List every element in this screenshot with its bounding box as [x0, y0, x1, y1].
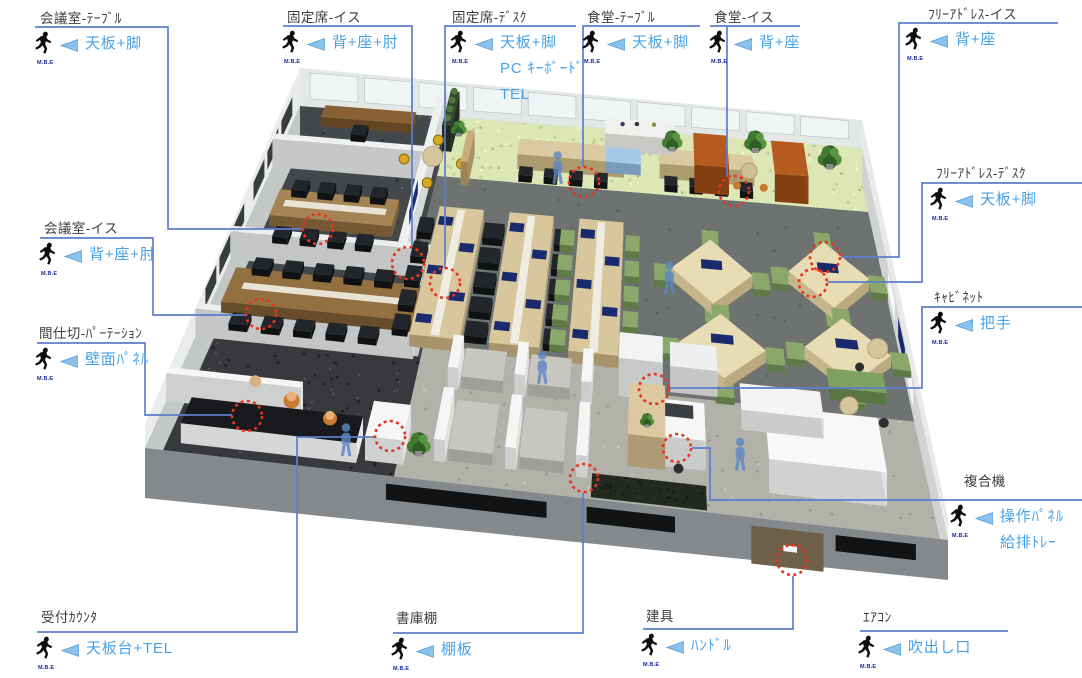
- blue-chevron-icon: [306, 37, 325, 52]
- component-list: 背+座+肘: [89, 242, 156, 268]
- component-label: TEL: [500, 82, 584, 108]
- callout-title-cafeteria-chair: 食堂-イス: [714, 6, 774, 26]
- callout-body-meeting-room-table: M.B.E天板+脚: [33, 31, 142, 66]
- callout-title-fixed-seat-chair: 固定席-イス: [287, 6, 361, 26]
- component-label: 背+座+肘: [89, 242, 156, 268]
- component-label: 把手: [980, 311, 1012, 337]
- mbe-figure-glyph: [38, 242, 59, 267]
- mbe-figure-glyph: [708, 30, 729, 55]
- mbe-icon: M.B.E: [928, 187, 954, 222]
- mbe-figure-glyph: [929, 311, 950, 336]
- component-label: 天板+脚: [500, 30, 584, 56]
- component-label: ﾊﾝﾄﾞﾙ: [691, 633, 732, 659]
- blue-chevron-icon: [882, 642, 901, 657]
- mbe-icon: M.B.E: [903, 27, 929, 62]
- callout-title-book-shelf: 書庫棚: [396, 607, 438, 627]
- mbe-icon: M.B.E: [948, 504, 974, 539]
- mbe-label: M.B.E: [860, 664, 876, 670]
- callout-title-meeting-room-chair: 会議室-イス: [44, 217, 118, 237]
- component-list: 操作ﾊﾟﾈﾙ給排ﾄﾚｰ: [1000, 504, 1064, 556]
- mbe-icon: M.B.E: [33, 347, 59, 382]
- callout-body-cafeteria-chair: M.B.E背+座: [707, 30, 800, 65]
- callout-title-meeting-room-table: 会議室-ﾃｰﾌﾞﾙ: [40, 7, 122, 27]
- mbe-figure-glyph: [929, 187, 950, 212]
- component-list: 棚板: [441, 637, 473, 663]
- component-label: 天板+脚: [980, 187, 1037, 213]
- mbe-figure-glyph: [390, 637, 411, 662]
- component-label: 背+座+肘: [332, 30, 399, 56]
- component-list: 背+座: [955, 27, 996, 53]
- component-label: PC ｷｰﾎﾞｰﾄﾞ: [500, 56, 584, 82]
- component-list: 背+座: [759, 30, 800, 56]
- mbe-icon: M.B.E: [856, 635, 882, 670]
- mbe-label: M.B.E: [37, 60, 53, 66]
- mbe-icon: M.B.E: [639, 633, 665, 668]
- callout-title-cafeteria-table: 食堂-ﾃｰﾌﾞﾙ: [587, 6, 655, 26]
- blue-chevron-icon: [929, 34, 948, 49]
- blue-chevron-icon: [954, 194, 973, 209]
- mbe-icon: M.B.E: [37, 242, 63, 277]
- component-label: 棚板: [441, 637, 473, 663]
- blue-chevron-icon: [665, 640, 684, 655]
- callout-body-multifunction-printer: M.B.E操作ﾊﾟﾈﾙ給排ﾄﾚｰ: [948, 504, 1064, 556]
- mbe-figure-glyph: [640, 633, 661, 658]
- mbe-label: M.B.E: [41, 271, 57, 277]
- mbe-figure-glyph: [281, 30, 302, 55]
- mbe-label: M.B.E: [907, 56, 923, 62]
- mbe-icon: M.B.E: [280, 30, 306, 65]
- mbe-figure-glyph: [949, 504, 970, 529]
- component-list: 天板+脚: [85, 31, 142, 57]
- component-list: 背+座+肘: [332, 30, 399, 56]
- blue-chevron-icon: [733, 37, 752, 52]
- component-list: 天板台+TEL: [86, 636, 173, 662]
- callout-body-free-address-desk: M.B.E天板+脚: [928, 187, 1037, 222]
- blue-chevron-icon: [954, 318, 973, 333]
- callout-body-book-shelf: M.B.E棚板: [389, 637, 473, 672]
- component-list: 把手: [980, 311, 1012, 337]
- blue-chevron-icon: [60, 643, 79, 658]
- component-label: 天板+脚: [632, 30, 689, 56]
- component-label: 壁面ﾊﾟﾈﾙ: [85, 347, 149, 373]
- blue-chevron-icon: [59, 354, 78, 369]
- callout-title-air-conditioner: ｴｱｺﾝ: [863, 606, 892, 626]
- mbe-icon: M.B.E: [448, 30, 474, 65]
- callout-body-fixed-seat-desk: M.B.E天板+脚PC ｷｰﾎﾞｰﾄﾞTEL: [448, 30, 584, 108]
- callout-body-air-conditioner: M.B.E吹出し口: [856, 635, 971, 670]
- callout-body-reception-counter: M.B.E天板台+TEL: [34, 636, 173, 671]
- callout-title-reception-counter: 受付ｶｳﾝﾀ: [41, 606, 97, 626]
- callout-body-cafeteria-table: M.B.E天板+脚: [580, 30, 689, 65]
- blue-chevron-icon: [59, 38, 78, 53]
- callout-body-cabinet: M.B.E把手: [928, 311, 1012, 346]
- mbe-figure-glyph: [904, 27, 925, 52]
- component-label: 操作ﾊﾟﾈﾙ: [1000, 504, 1064, 530]
- callout-body-fittings-door: M.B.Eﾊﾝﾄﾞﾙ: [639, 633, 732, 668]
- mbe-label: M.B.E: [952, 533, 968, 539]
- callout-body-partition: M.B.E壁面ﾊﾟﾈﾙ: [33, 347, 149, 382]
- office-furniture-annotation-diagram: 会議室-ﾃｰﾌﾞﾙM.B.E天板+脚固定席-イスM.B.E背+座+肘固定席-ﾃﾞ…: [0, 0, 1082, 678]
- callout-body-meeting-room-chair: M.B.E背+座+肘: [37, 242, 156, 277]
- mbe-figure-glyph: [34, 347, 55, 372]
- mbe-label: M.B.E: [393, 666, 409, 672]
- mbe-figure-glyph: [581, 30, 602, 55]
- mbe-icon: M.B.E: [928, 311, 954, 346]
- blue-chevron-icon: [63, 249, 82, 264]
- mbe-label: M.B.E: [452, 59, 468, 65]
- callout-title-fittings-door: 建具: [646, 605, 674, 625]
- callout-title-free-address-chair: ﾌﾘｰｱﾄﾞﾚｽ-イス: [928, 3, 1017, 23]
- mbe-icon: M.B.E: [34, 636, 60, 671]
- blue-chevron-icon: [474, 37, 493, 52]
- callout-title-fixed-seat-desk: 固定席-ﾃﾞｽｸ: [452, 6, 527, 26]
- blue-chevron-icon: [606, 37, 625, 52]
- component-label: 天板台+TEL: [86, 636, 173, 662]
- component-list: 天板+脚PC ｷｰﾎﾞｰﾄﾞTEL: [500, 30, 584, 108]
- mbe-label: M.B.E: [284, 59, 300, 65]
- component-label: 背+座: [955, 27, 996, 53]
- component-label: 背+座: [759, 30, 800, 56]
- mbe-label: M.B.E: [643, 662, 659, 668]
- blue-chevron-icon: [415, 644, 434, 659]
- component-list: 天板+脚: [980, 187, 1037, 213]
- component-list: ﾊﾝﾄﾞﾙ: [691, 633, 732, 659]
- component-list: 天板+脚: [632, 30, 689, 56]
- mbe-label: M.B.E: [584, 59, 600, 65]
- mbe-label: M.B.E: [932, 340, 948, 346]
- mbe-figure-glyph: [34, 31, 55, 56]
- mbe-icon: M.B.E: [389, 637, 415, 672]
- mbe-figure-glyph: [449, 30, 470, 55]
- callout-title-free-address-desk: ﾌﾘｰｱﾄﾞﾚｽ-ﾃﾞｽｸ: [936, 162, 1026, 182]
- callout-body-fixed-seat-chair: M.B.E背+座+肘: [280, 30, 399, 65]
- mbe-icon: M.B.E: [580, 30, 606, 65]
- component-label: 天板+脚: [85, 31, 142, 57]
- mbe-label: M.B.E: [37, 376, 53, 382]
- callout-body-free-address-chair: M.B.E背+座: [903, 27, 996, 62]
- blue-chevron-icon: [974, 511, 993, 526]
- callout-title-partition: 間仕切-ﾊﾟｰﾃｰｼｮﾝ: [39, 322, 142, 342]
- callout-title-multifunction-printer: 複合機: [964, 470, 1006, 490]
- component-list: 吹出し口: [908, 635, 971, 661]
- mbe-icon: M.B.E: [707, 30, 733, 65]
- mbe-label: M.B.E: [38, 665, 54, 671]
- mbe-label: M.B.E: [711, 59, 727, 65]
- mbe-figure-glyph: [35, 636, 56, 661]
- mbe-figure-glyph: [857, 635, 878, 660]
- mbe-label: M.B.E: [932, 216, 948, 222]
- component-label: 給排ﾄﾚｰ: [1000, 530, 1064, 556]
- callout-title-cabinet: ｷｬﾋﾞﾈｯﾄ: [934, 286, 984, 306]
- component-list: 壁面ﾊﾟﾈﾙ: [85, 347, 149, 373]
- component-label: 吹出し口: [908, 635, 971, 661]
- callout-layer: 会議室-ﾃｰﾌﾞﾙM.B.E天板+脚固定席-イスM.B.E背+座+肘固定席-ﾃﾞ…: [0, 0, 1082, 678]
- mbe-icon: M.B.E: [33, 31, 59, 66]
